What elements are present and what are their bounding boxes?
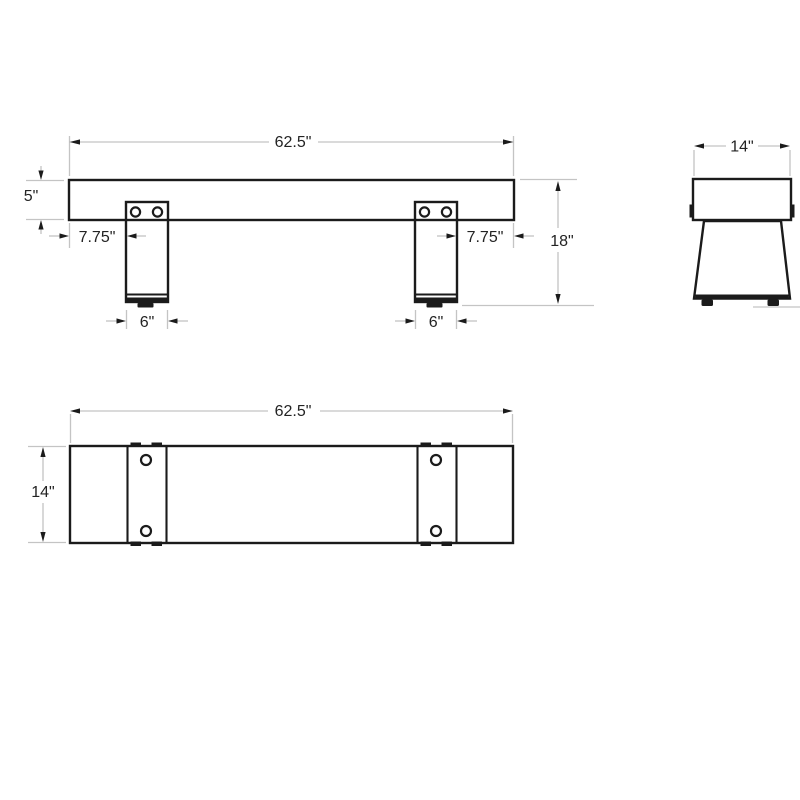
arrowhead (694, 143, 704, 148)
top-right-bracket-hole-2 (431, 526, 441, 536)
arrowhead (555, 294, 560, 304)
side-seat-outline (693, 179, 791, 220)
front-left-inset-dimension: 7.75" (49, 223, 146, 248)
front-view: 62.5" 5" 7.75" 7.75" (24, 134, 594, 331)
front-right-bracket-hole-2 (442, 207, 451, 216)
front-left-bracket-hole-1 (131, 207, 140, 216)
front-left-leg-bottom-bar (125, 298, 169, 304)
front-right-inset-label: 7.75" (467, 229, 504, 246)
arrowhead (168, 318, 178, 323)
front-right-leg-foot (427, 303, 443, 308)
arrowhead (406, 318, 416, 323)
arrowhead (38, 220, 43, 230)
front-right-inset-dimension: 7.75" (437, 223, 534, 248)
front-seat-thickness-dimension: 5" (24, 166, 64, 234)
front-left-bracket-hole-2 (153, 207, 162, 216)
top-left-bracket-tab (152, 542, 163, 547)
arrowhead (60, 233, 70, 238)
top-width-label: 62.5" (275, 403, 312, 420)
front-height-label: 18" (550, 233, 573, 250)
top-right-bracket-tab (421, 542, 432, 547)
bench-dimension-drawing: 62.5" 5" 7.75" 7.75" (0, 0, 800, 800)
front-left-leg-foot (138, 303, 154, 308)
side-depth-label: 14" (730, 139, 753, 156)
front-seat-thickness-label: 5" (24, 188, 39, 205)
top-right-bracket-tab (421, 443, 432, 448)
top-depth-label: 14" (31, 484, 54, 501)
arrowhead (40, 532, 45, 542)
arrowhead (780, 143, 790, 148)
front-left-inset-label: 7.75" (79, 229, 116, 246)
top-left-bracket-tab (131, 443, 142, 448)
side-view: 14" (690, 139, 800, 308)
front-width-label: 62.5" (275, 134, 312, 151)
front-left-leg-width-dimension: 6" (106, 310, 188, 331)
side-right-foot (768, 300, 780, 307)
side-leg-outline (694, 221, 790, 299)
front-right-leg-width-label: 6" (429, 314, 444, 331)
diagram-canvas: 62.5" 5" 7.75" 7.75" (0, 0, 800, 800)
top-right-bracket-tab (442, 443, 453, 448)
top-depth-dimension: 14" (28, 447, 66, 543)
front-right-leg-bottom-bar (414, 298, 458, 304)
front-right-leg-width-dimension: 6" (395, 310, 477, 331)
arrowhead (38, 171, 43, 181)
front-right-bracket-hole-1 (420, 207, 429, 216)
top-width-dimension: 62.5" (70, 403, 513, 443)
front-width-dimension: 62.5" (70, 134, 514, 176)
front-left-leg-width-label: 6" (140, 314, 155, 331)
arrowhead (70, 139, 81, 144)
arrowhead (447, 233, 457, 238)
arrowhead (503, 139, 514, 144)
arrowhead (503, 408, 513, 413)
top-left-bracket-tab (152, 443, 163, 448)
top-view: 62.5" 14" (28, 403, 513, 546)
arrowhead (40, 447, 45, 457)
arrowhead (514, 233, 524, 238)
top-left-bracket-hole-2 (141, 526, 151, 536)
arrowhead (555, 181, 560, 191)
arrowhead (127, 233, 137, 238)
side-depth-dimension: 14" (694, 139, 790, 177)
side-left-foot (702, 300, 714, 307)
arrowhead (457, 318, 467, 323)
top-right-bracket-hole-1 (431, 455, 441, 465)
top-left-bracket-tab (131, 542, 142, 547)
arrowhead (117, 318, 127, 323)
top-seat-outline (70, 446, 513, 543)
top-right-bracket-tab (442, 542, 453, 547)
top-left-bracket-hole-1 (141, 455, 151, 465)
arrowhead (70, 408, 80, 413)
